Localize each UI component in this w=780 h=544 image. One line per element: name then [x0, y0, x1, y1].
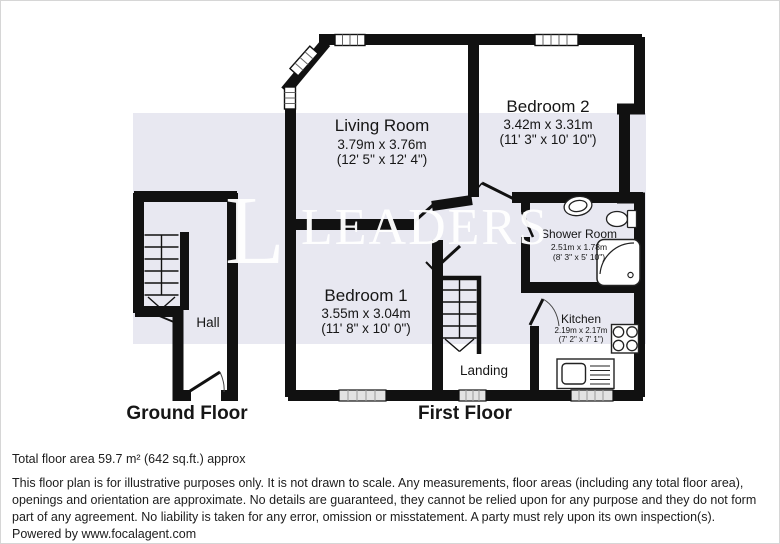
landing-label: Landing — [460, 363, 508, 378]
entry-door — [190, 372, 224, 392]
kitchen-metric: 2.19m x 2.17m — [555, 326, 608, 335]
kitchen-name: Kitchen — [561, 312, 601, 326]
living-room-name: Living Room — [335, 116, 430, 135]
kitchen-imperial: (7' 2" x 7' 1") — [559, 335, 604, 344]
window-bedroom2-top — [535, 35, 578, 46]
shower-room-imperial: (8' 3" x 5' 10") — [553, 252, 605, 262]
living-room-imperial: (12' 5" x 12' 4") — [337, 152, 428, 167]
window-bedroom1-bottom — [339, 390, 386, 401]
bedroom1-name: Bedroom 1 — [324, 286, 407, 305]
bedroom1-imperial: (11' 8" x 10' 0") — [321, 321, 411, 336]
hall-label: Hall — [196, 315, 219, 330]
living-room-metric: 3.79m x 3.76m — [337, 137, 426, 152]
watermark-initial: L — [225, 177, 285, 285]
shower-room-metric: 2.51m x 1.78m — [551, 242, 607, 252]
bedroom2-name: Bedroom 2 — [506, 97, 589, 116]
shower-room-name: Shower Room — [541, 227, 617, 241]
bedroom1-metric: 3.55m x 3.04m — [321, 306, 410, 321]
watermark-text: LEADERS — [301, 199, 549, 256]
bedroom2-imperial: (11' 3" x 10' 10") — [499, 132, 596, 147]
window-landing-bottom — [459, 390, 486, 401]
bedroom2-metric: 3.42m x 3.31m — [503, 117, 592, 132]
powered-by: Powered by www.focalagent.com — [12, 526, 770, 543]
total-floor-area: Total floor area 59.7 m² (642 sq.ft.) ap… — [12, 452, 770, 466]
window-kitchen-bottom — [571, 390, 613, 401]
sink-unit — [557, 359, 614, 389]
footer: Total floor area 59.7 m² (642 sq.ft.) ap… — [12, 452, 770, 543]
window-living-top — [335, 35, 365, 46]
stove — [612, 325, 639, 354]
toilet — [607, 211, 637, 228]
window-living-left — [285, 87, 296, 109]
first-floor-label: First Floor — [418, 403, 513, 424]
floorplan-page: Living Room 3.79m x 3.76m (12' 5" x 12' … — [0, 0, 780, 544]
ground-floor-label: Ground Floor — [126, 403, 248, 424]
disclaimer-text: This floor plan is for illustrative purp… — [12, 475, 770, 526]
